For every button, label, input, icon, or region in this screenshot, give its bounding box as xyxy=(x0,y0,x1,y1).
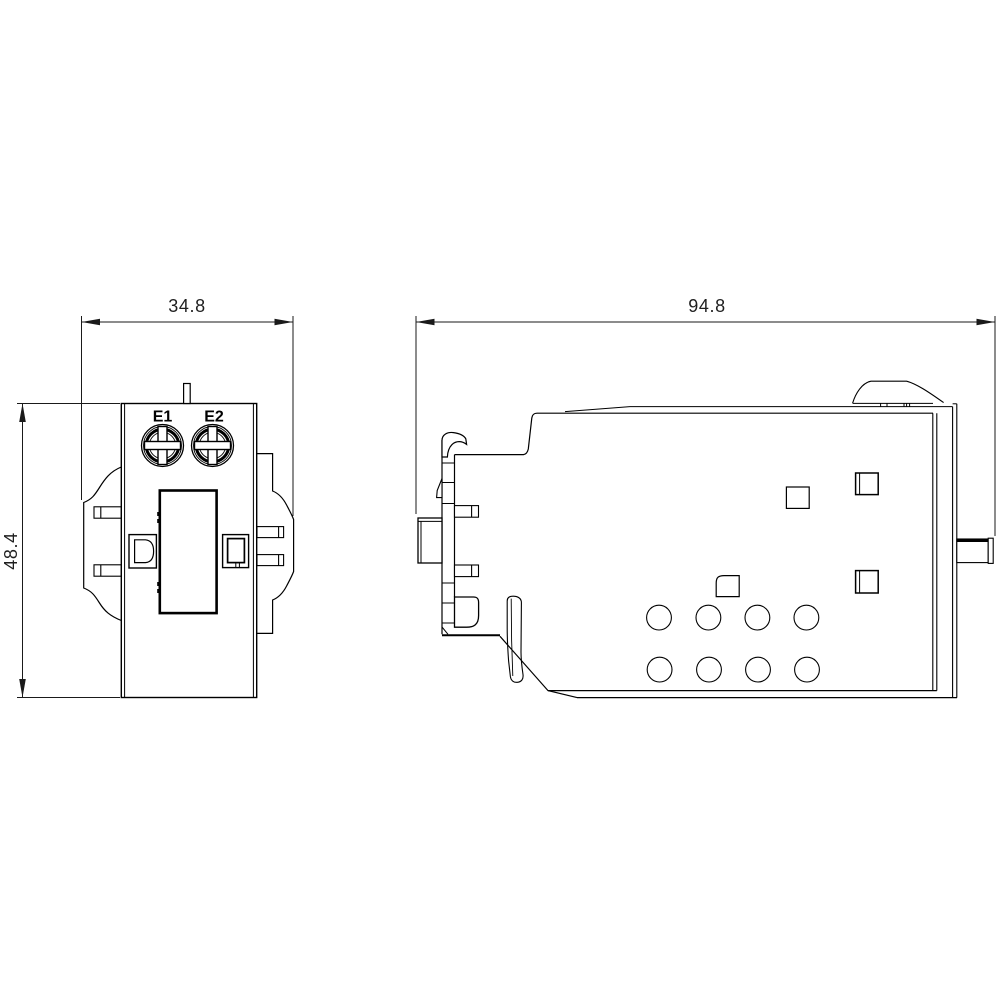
din-rail-connector xyxy=(418,432,479,634)
side-wedge xyxy=(437,479,442,498)
connector-foot xyxy=(455,597,479,627)
top-hook xyxy=(442,432,467,457)
vent-holes-row-top xyxy=(647,605,819,630)
front-view: E1 E2 xyxy=(84,384,294,698)
square-opening-double-top xyxy=(856,473,879,495)
square-opening xyxy=(786,487,809,508)
arrowhead-left xyxy=(82,319,101,326)
front-right-latch xyxy=(223,535,249,568)
dim-label-front-width: 34.8 xyxy=(168,296,205,316)
connector-pin-bottom xyxy=(455,565,479,577)
release-clip-slot xyxy=(507,596,523,682)
arrowhead-left xyxy=(416,319,435,326)
screw-e2-icon xyxy=(192,425,234,467)
screw-e1-icon xyxy=(142,425,184,467)
rounded-square-opening xyxy=(716,576,739,597)
front-left-latch xyxy=(129,535,156,568)
dimension-drawing: 34.8 48.4 94.8 xyxy=(0,0,1000,1000)
front-left-wing xyxy=(84,467,122,621)
side-view xyxy=(418,381,993,697)
square-opening-double-bottom xyxy=(856,571,879,593)
connector-pin-top xyxy=(455,506,479,518)
front-right-tab-bottom xyxy=(257,555,284,566)
dimension-side-width: 94.8 xyxy=(416,296,995,536)
side-interior-features xyxy=(647,473,879,682)
front-right-wing xyxy=(257,454,294,634)
dimension-front-height: 48.4 xyxy=(1,404,120,698)
top-pin-tab xyxy=(184,384,191,404)
dimension-drawing-page: 34.8 48.4 94.8 xyxy=(0,0,1000,1000)
front-right-tab-top xyxy=(257,527,284,538)
side-right-cap xyxy=(933,404,957,698)
side-right-pin xyxy=(957,538,993,563)
vent-holes-row-bottom xyxy=(647,657,819,682)
front-left-tab-bottom xyxy=(94,565,121,576)
top-bump xyxy=(853,381,944,406)
left-mount-block xyxy=(418,518,442,563)
arrowhead-bottom xyxy=(19,679,26,698)
arrowhead-top xyxy=(19,404,26,423)
dim-label-front-height: 48.4 xyxy=(1,532,21,569)
arrowhead-right xyxy=(977,319,996,326)
arrowhead-right xyxy=(275,319,294,326)
side-body-outline xyxy=(442,407,957,698)
front-left-tab-top xyxy=(94,507,121,518)
dim-label-side-width: 94.8 xyxy=(688,296,725,316)
terminal-label-e1: E1 xyxy=(153,409,173,426)
terminal-label-e2: E2 xyxy=(204,409,224,426)
